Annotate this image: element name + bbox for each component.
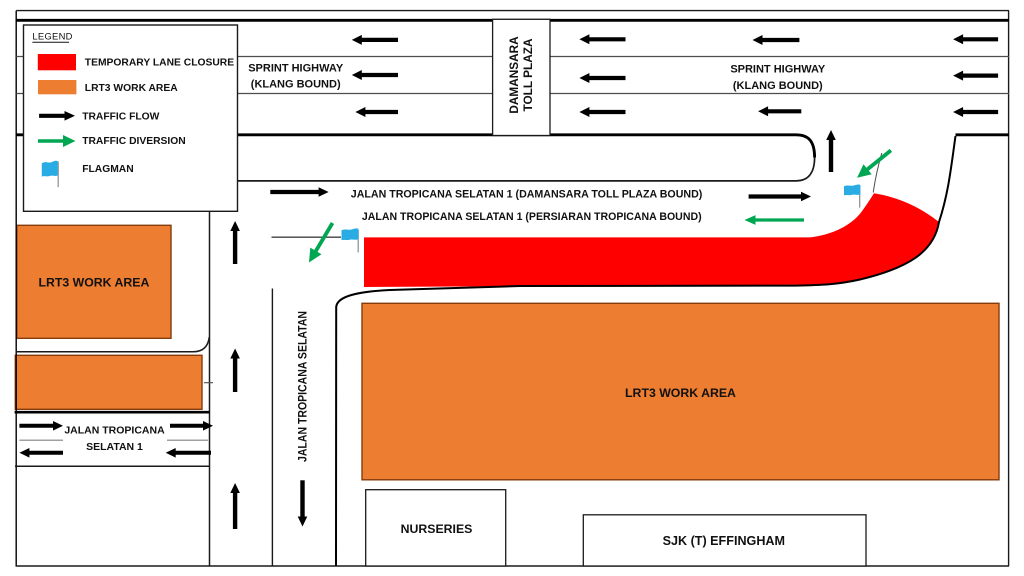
svg-text:LRT3 WORK AREA: LRT3 WORK AREA <box>38 275 149 289</box>
svg-text:JALAN TROPICANA SELATAN 1 (PER: JALAN TROPICANA SELATAN 1 (PERSIARAN TRO… <box>362 211 702 223</box>
svg-text:TRAFFIC DIVERSION: TRAFFIC DIVERSION <box>82 136 186 147</box>
svg-text:JALAN TROPICANA SELATAN 1 (DAM: JALAN TROPICANA SELATAN 1 (DAMANSARA TOL… <box>351 188 703 200</box>
svg-text:SPRINT HIGHWAY: SPRINT HIGHWAY <box>730 64 826 76</box>
svg-text:SPRINT HIGHWAY: SPRINT HIGHWAY <box>248 63 344 75</box>
svg-text:LRT3 WORK AREA: LRT3 WORK AREA <box>85 83 178 94</box>
svg-text:SELATAN 1: SELATAN 1 <box>86 441 143 453</box>
svg-text:TEMPORARY LANE CLOSURE: TEMPORARY LANE CLOSURE <box>85 57 234 68</box>
svg-text:DAMANSARATOLL PLAZA: DAMANSARATOLL PLAZA <box>507 36 535 114</box>
svg-text:LEGEND: LEGEND <box>32 31 72 42</box>
svg-text:JALAN TROPICANA SELATAN: JALAN TROPICANA SELATAN <box>296 311 310 462</box>
svg-text:FLAGMAN: FLAGMAN <box>82 164 133 175</box>
svg-text:SJK (T) EFFINGHAM: SJK (T) EFFINGHAM <box>663 534 785 548</box>
svg-text:JALAN TROPICANA: JALAN TROPICANA <box>64 425 165 437</box>
svg-text:TRAFFIC FLOW: TRAFFIC FLOW <box>82 111 159 122</box>
svg-text:(KLANG BOUND): (KLANG BOUND) <box>733 80 823 92</box>
svg-text:(KLANG BOUND): (KLANG BOUND) <box>251 79 341 91</box>
svg-text:LRT3 WORK AREA: LRT3 WORK AREA <box>625 386 736 400</box>
svg-text:NURSERIES: NURSERIES <box>401 522 473 536</box>
